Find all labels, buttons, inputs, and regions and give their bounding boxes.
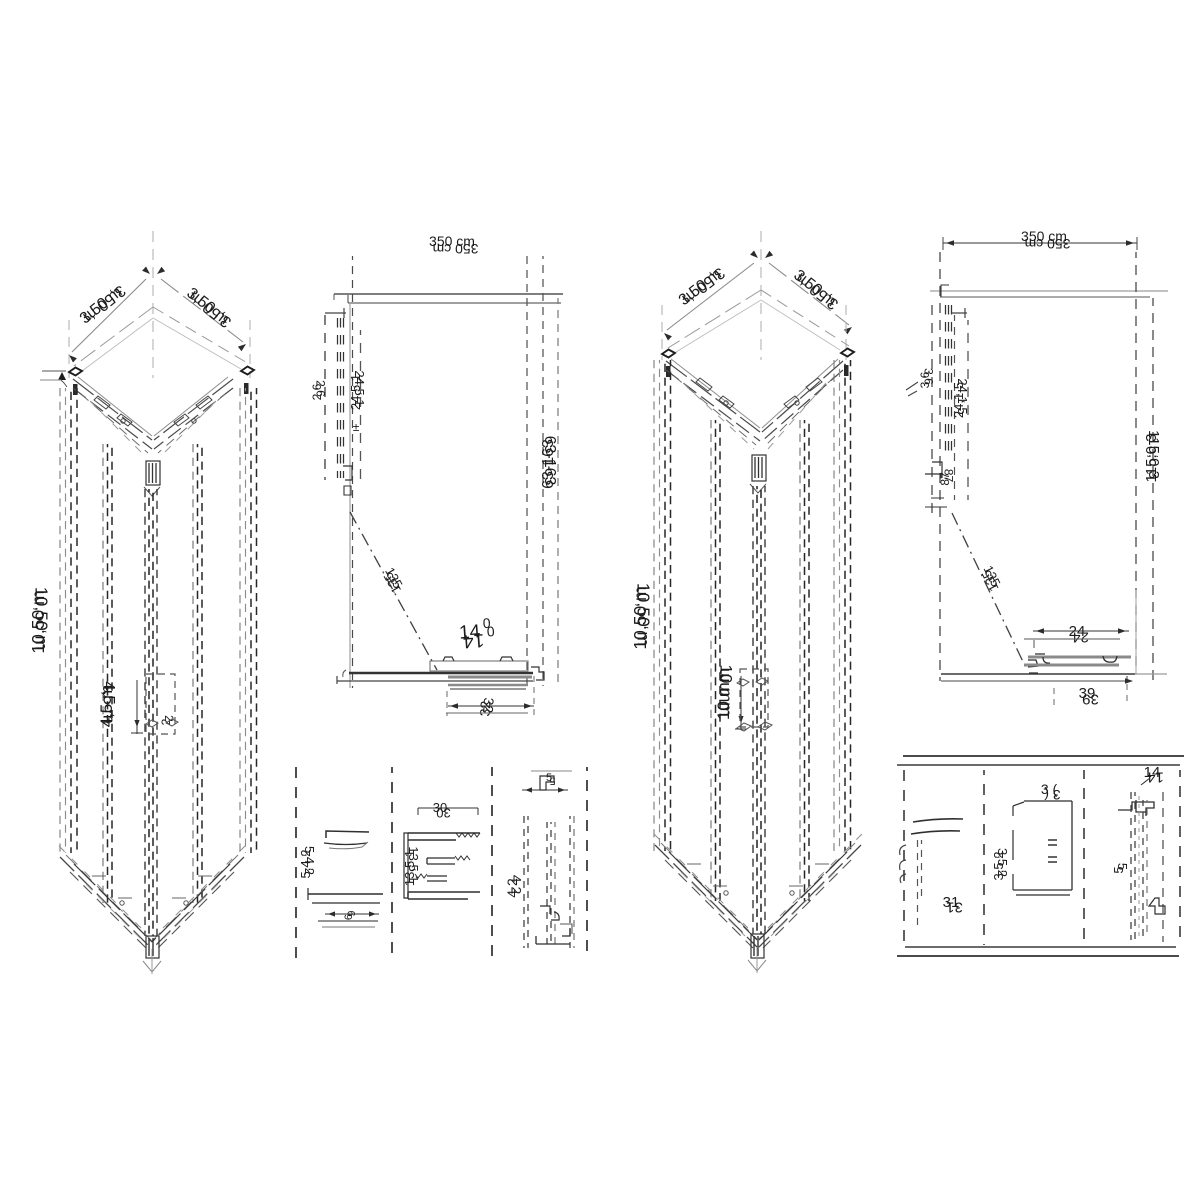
svg-text:10,50 m: 10,50 m (31, 587, 51, 650)
svg-text:10 mm: 10 mm (717, 665, 736, 717)
svg-text:5: 5 (549, 775, 555, 787)
svg-text:4,5 m: 4,5 m (100, 681, 119, 724)
svg-text:2,6: 2,6 (314, 380, 328, 397)
svg-text:3,6: 3,6 (922, 368, 936, 385)
svg-text:10,50 m: 10,50 m (633, 583, 653, 646)
svg-text:30: 30 (436, 805, 450, 820)
svg-text:±: ± (353, 420, 360, 434)
svg-text:0: 0 (486, 623, 495, 640)
svg-text:24: 24 (1072, 628, 1089, 645)
svg-text:3,5 2: 3,5 2 (995, 848, 1010, 877)
svg-text:5: 5 (1115, 863, 1130, 870)
svg-text:87: 87 (942, 469, 956, 483)
svg-text:6: 6 (345, 910, 357, 916)
svg-text:14: 14 (1147, 768, 1164, 785)
svg-text:14: 14 (462, 629, 485, 651)
svg-text:13,5 1: 13,5 1 (406, 846, 421, 882)
svg-text:350 cm: 350 cm (1025, 236, 1071, 252)
svg-text:32: 32 (480, 697, 497, 714)
svg-text:24,5 1: 24,5 1 (352, 370, 367, 406)
svg-text:350 cm: 350 cm (433, 241, 479, 257)
svg-text:31: 31 (946, 898, 963, 915)
svg-text:115,0 3: 115,0 3 (1145, 430, 1162, 479)
svg-text:4 2: 4 2 (508, 875, 524, 895)
svg-text:39: 39 (1082, 690, 1099, 707)
svg-text:5,4 2: 5,4 2 (302, 846, 317, 875)
svg-text:63-163: 63-163 (541, 436, 558, 486)
svg-text:24,1 5: 24,1 5 (955, 378, 970, 414)
